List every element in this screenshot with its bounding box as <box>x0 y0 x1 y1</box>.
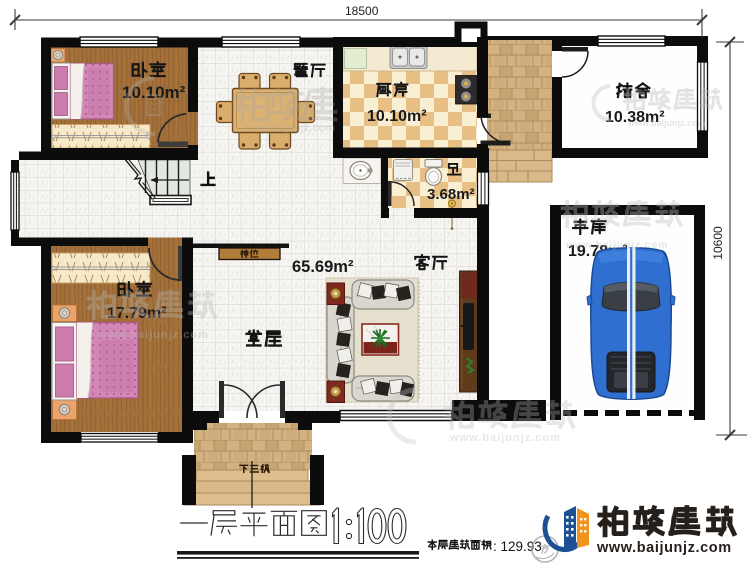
svg-text:www.baijunjz.com: www.baijunjz.com <box>565 240 668 251</box>
svg-text:www.baijunjz.com: www.baijunjz.com <box>596 540 732 556</box>
svg-text:www.baijunjz.com: www.baijunjz.com <box>97 329 209 341</box>
svg-text:www.baijunjz.com: www.baijunjz.com <box>239 122 335 134</box>
svg-text:www.baijunjz.com: www.baijunjz.com <box>449 432 561 444</box>
svg-text:www.baijunjz.com: www.baijunjz.com <box>627 118 706 128</box>
svg-text:10600: 10600 <box>711 226 725 260</box>
svg-text:10.10m²: 10.10m² <box>367 108 427 125</box>
svg-text:65.69m²: 65.69m² <box>292 258 354 276</box>
svg-text:18500: 18500 <box>345 4 379 18</box>
